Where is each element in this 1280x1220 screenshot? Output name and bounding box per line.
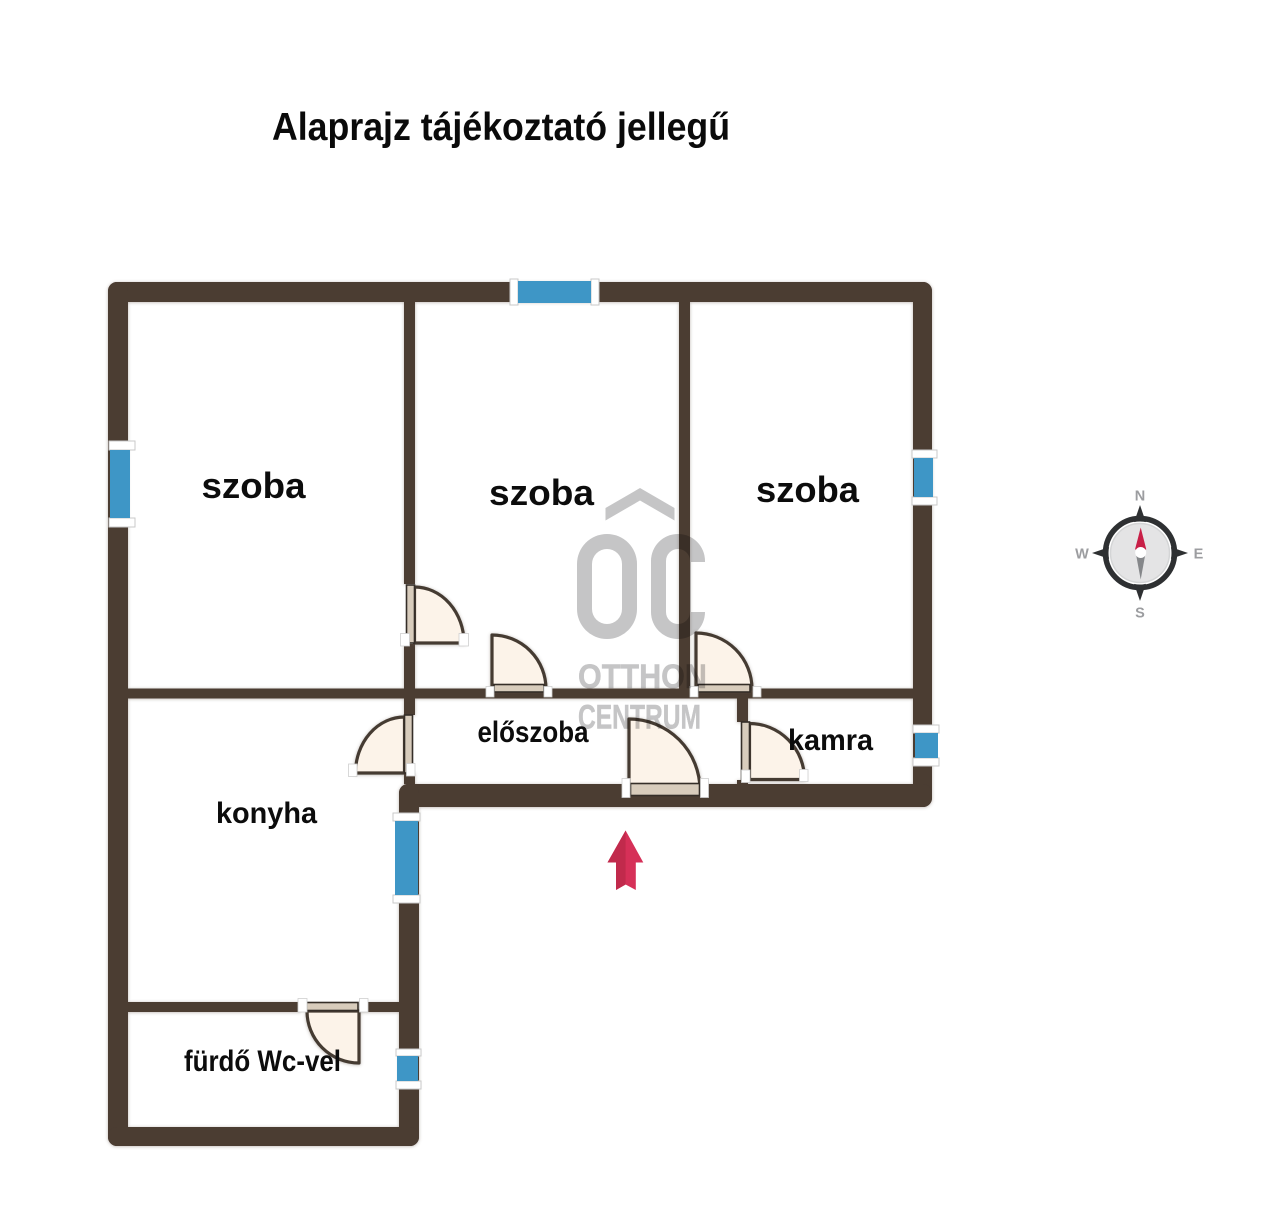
- svg-text:előszoba: előszoba: [478, 716, 589, 749]
- svg-text:konyha: konyha: [216, 797, 317, 830]
- svg-text:S: S: [1135, 606, 1145, 622]
- svg-text:E: E: [1194, 547, 1204, 563]
- svg-text:szoba: szoba: [756, 469, 860, 510]
- svg-text:szoba: szoba: [489, 472, 595, 513]
- svg-text:N: N: [1135, 489, 1145, 505]
- svg-text:CENTRUM: CENTRUM: [578, 699, 701, 737]
- svg-text:szoba: szoba: [202, 465, 307, 506]
- svg-text:kamra: kamra: [788, 724, 873, 757]
- svg-text:fürdő Wc-vel: fürdő Wc-vel: [184, 1045, 341, 1078]
- svg-text:OTTHON: OTTHON: [578, 658, 707, 696]
- svg-text:Alaprajz tájékoztató jellegű: Alaprajz tájékoztató jellegű: [272, 106, 730, 149]
- svg-text:W: W: [1075, 547, 1089, 563]
